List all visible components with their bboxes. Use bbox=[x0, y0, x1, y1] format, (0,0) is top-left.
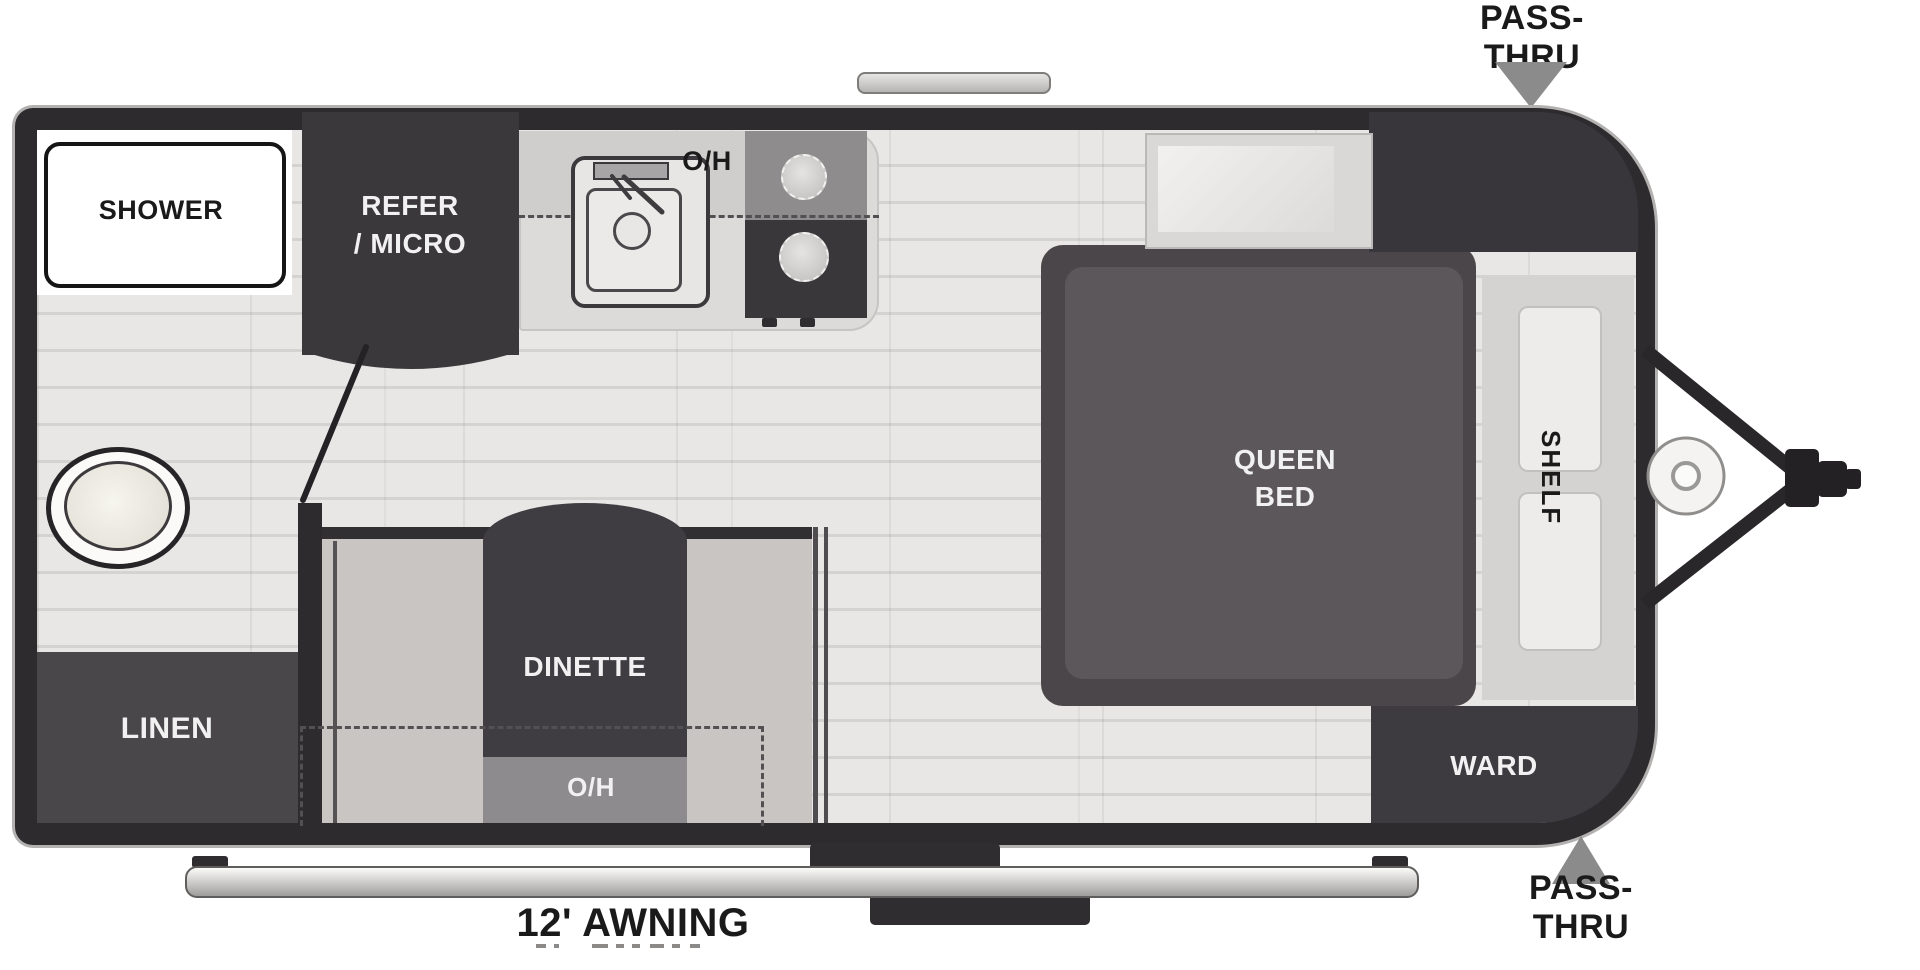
awning-tick bbox=[592, 944, 608, 948]
kitchen-overhead-label: O/H bbox=[672, 148, 742, 176]
hitch-coupler bbox=[1785, 449, 1819, 507]
propane-valve-icon bbox=[1673, 463, 1699, 489]
awning-tick bbox=[554, 944, 559, 948]
awning-tick bbox=[536, 944, 546, 948]
toilet-bowl bbox=[64, 461, 172, 551]
pass-thru-top-arrow-icon bbox=[1495, 62, 1567, 108]
sink-drain-icon bbox=[613, 212, 651, 250]
dinette-label: DINETTE bbox=[485, 651, 685, 683]
front-overhead-cabinet bbox=[1369, 112, 1638, 252]
dinette-table bbox=[483, 503, 687, 757]
awning-tick bbox=[672, 944, 680, 948]
hitch-frame-bar bbox=[1645, 488, 1793, 604]
stove-foot bbox=[800, 318, 815, 327]
dinette-slide-edge-line bbox=[813, 527, 818, 823]
ward-label: WARD bbox=[1394, 750, 1594, 782]
dresser-top bbox=[1158, 146, 1334, 232]
awning-tick bbox=[650, 944, 664, 948]
pass-thru-top-label: PASS-THRU bbox=[1432, 20, 1632, 56]
hitch-ball-mount bbox=[1845, 469, 1861, 489]
pass-thru-bottom-label: PASS-THRU bbox=[1481, 890, 1681, 926]
stove-foot bbox=[762, 318, 777, 327]
refer-label-line2: / MICRO bbox=[310, 228, 510, 260]
burner-icon bbox=[781, 154, 827, 200]
propane-tank-icon bbox=[1648, 438, 1724, 514]
dinette-slide-edge-line bbox=[824, 527, 828, 823]
shelf-label: SHELF bbox=[1533, 408, 1567, 548]
floorplan-canvas: PASS-THRU SHOWER LINEN REFER / MICRO O/H… bbox=[0, 0, 1920, 970]
hitch-assembly bbox=[1645, 350, 1861, 604]
linen-label: LINEN bbox=[67, 712, 267, 746]
awning-label: 12' AWNING bbox=[513, 903, 753, 943]
dinette-dashed-outline bbox=[300, 726, 764, 826]
awning-tick bbox=[632, 944, 640, 948]
burner-icon bbox=[779, 232, 829, 282]
queen-bed-label-line2: BED bbox=[1185, 481, 1385, 513]
faucet-icon bbox=[593, 162, 669, 180]
hitch-coupler-neck bbox=[1817, 461, 1847, 497]
shower-label: SHOWER bbox=[60, 195, 262, 227]
awning-bar bbox=[185, 866, 1419, 898]
awning-tick bbox=[616, 944, 624, 948]
roof-rack bbox=[857, 72, 1051, 94]
refer-label-line1: REFER bbox=[310, 190, 510, 222]
awning-tick bbox=[690, 944, 700, 948]
hitch-frame-bar bbox=[1645, 350, 1793, 470]
dinette-overhead-label: O/H bbox=[556, 774, 626, 802]
queen-bed-label-line1: QUEEN bbox=[1185, 444, 1385, 476]
